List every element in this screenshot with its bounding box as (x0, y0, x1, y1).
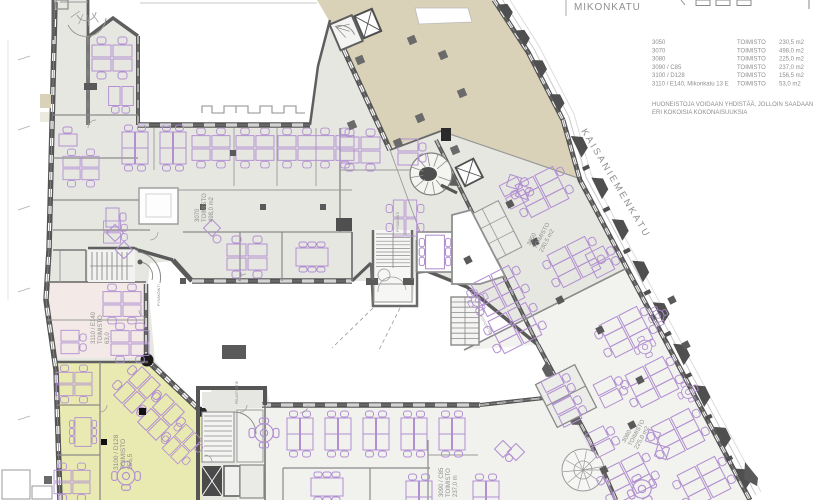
svg-text:53,0 m2: 53,0 m2 (779, 82, 801, 88)
svg-text:3090 / C85: 3090 / C85 (652, 65, 682, 71)
svg-text:498,0 m2: 498,0 m2 (779, 48, 805, 54)
svg-text:ERI KOKOISIA KOKONAISUUKSIA: ERI KOKOISIA KOKONAISUUKSIA (652, 110, 747, 116)
svg-text:MIKONKATU: MIKONKATU (574, 2, 641, 13)
svg-text:PYSÄKÖINTI: PYSÄKÖINTI (157, 284, 161, 306)
svg-text:TOIMISTO: TOIMISTO (737, 73, 766, 79)
svg-text:TOIMISTO: TOIMISTO (737, 40, 766, 46)
svg-text:TOIMISTO: TOIMISTO (737, 65, 766, 71)
svg-text:TOIMISTO: TOIMISTO (737, 48, 766, 54)
svg-text:HUONEISTOJA VOIDAAN YHDISTÄÄ,: HUONEISTOJA VOIDAAN YHDISTÄÄ, JOLLOIN SA… (652, 101, 813, 108)
svg-text:156,5 m2: 156,5 m2 (779, 73, 805, 79)
svg-text:PELASTUSTIE: PELASTUSTIE (235, 380, 239, 404)
svg-text:TOIMISTO: TOIMISTO (737, 82, 766, 88)
svg-text:237,0 m2: 237,0 m2 (779, 65, 805, 71)
svg-text:3070: 3070 (652, 48, 666, 54)
svg-text:225,0 m2: 225,0 m2 (779, 57, 805, 63)
svg-text:TOIMISTO: TOIMISTO (737, 57, 766, 63)
svg-text:3110 / E140, Mikonkatu 13 E: 3110 / E140, Mikonkatu 13 E (652, 82, 729, 88)
svg-text:230,5 m2: 230,5 m2 (779, 40, 805, 46)
svg-text:3100 / D128: 3100 / D128 (652, 73, 685, 79)
svg-text:PYSÄKÖINTI: PYSÄKÖINTI (396, 212, 400, 232)
svg-text:3080: 3080 (652, 57, 666, 63)
svg-text:3050: 3050 (652, 40, 666, 46)
